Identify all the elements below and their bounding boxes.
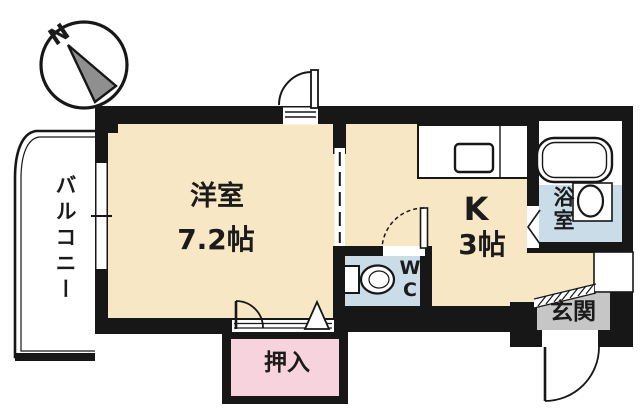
shoe-cabinet [594,252,633,292]
entrance-door-opening [542,330,598,347]
balcony-outline [15,131,95,357]
floor-plan: N バルコニー 洋室 7.2帖 K 3帖 WC 浴室 玄関 押入 [0,0,640,410]
western-room-floor [100,115,340,320]
entrance-door-swing-arc [545,347,599,401]
top-door-leaf [311,70,318,108]
wc-door-leaf [421,208,428,248]
wc-door-opening [383,246,425,256]
balcony-bottom-edge [15,353,95,361]
wall-divider-stub [333,106,346,154]
toilet-tank-icon [344,266,359,293]
wall-bottom-center [333,306,537,332]
top-door-threshold [283,108,318,125]
closet-floor [231,339,339,396]
top-door-swing-arc [279,72,311,105]
washbasin-icon [578,186,603,217]
kitchen-sink-icon [455,144,493,172]
wall-entrance-right [610,288,633,347]
floor-plan-drawing [0,0,640,410]
